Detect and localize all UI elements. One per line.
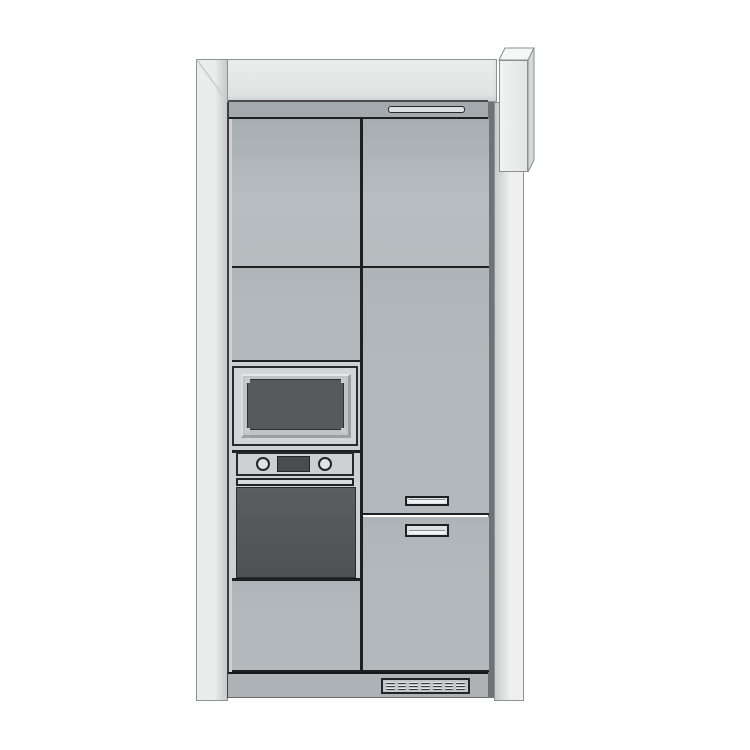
microwave-hinge-bottom-left <box>245 428 250 433</box>
freezer-door <box>363 517 489 672</box>
mid-left-panel <box>232 268 361 362</box>
handle-groove <box>409 530 445 534</box>
built-in-microwave <box>232 366 358 446</box>
microwave-hinge-top-left <box>245 378 250 383</box>
upper-right-door <box>363 119 489 268</box>
vent-slat <box>421 688 430 690</box>
vent-slat <box>421 682 430 684</box>
vent-slat <box>398 688 407 690</box>
side-pillar <box>499 60 528 172</box>
vent-slat <box>386 685 395 687</box>
oven-control-panel <box>236 452 354 476</box>
frame-left-stile <box>196 59 228 701</box>
vent-slat <box>456 682 465 684</box>
vent-slat <box>386 682 395 684</box>
vent-slat <box>433 688 442 690</box>
vent-slat <box>386 688 395 690</box>
handle-groove <box>409 499 445 503</box>
lower-left-panel <box>232 580 361 672</box>
oven-door <box>236 487 356 578</box>
vent-slat <box>409 682 418 684</box>
oven-knob-right <box>318 457 332 471</box>
vent-slat <box>398 685 407 687</box>
vent-slat <box>445 688 454 690</box>
microwave-hinge-bottom-right <box>341 428 346 433</box>
microwave-window <box>247 379 344 430</box>
frame-cornice <box>196 59 497 102</box>
oven-handle <box>236 478 354 486</box>
vent-slat <box>433 682 442 684</box>
upper-left-door <box>232 119 361 268</box>
vent-slat <box>421 685 430 687</box>
microwave-hinge-top-right <box>341 378 346 383</box>
vent-slat <box>409 688 418 690</box>
pillar-top-face <box>499 48 534 60</box>
vent-slat <box>445 685 454 687</box>
top-rail-handle <box>388 106 465 113</box>
render-canvas <box>0 0 750 750</box>
vent-slat <box>409 685 418 687</box>
oven-display <box>277 456 310 472</box>
drawer-handle-lower <box>405 524 449 537</box>
vent-slat <box>445 682 454 684</box>
vent-slat <box>456 688 465 690</box>
vent-slat <box>456 685 465 687</box>
oven-knob-left <box>256 457 270 471</box>
microwave-bezel <box>241 374 351 438</box>
vent-grille <box>381 678 470 695</box>
fridge-door <box>363 268 489 515</box>
vent-slat <box>433 685 442 687</box>
pillar-side-face <box>528 48 534 172</box>
frame-right-stile <box>494 102 524 701</box>
vent-slat <box>398 682 407 684</box>
drawer-handle-upper <box>405 496 449 506</box>
